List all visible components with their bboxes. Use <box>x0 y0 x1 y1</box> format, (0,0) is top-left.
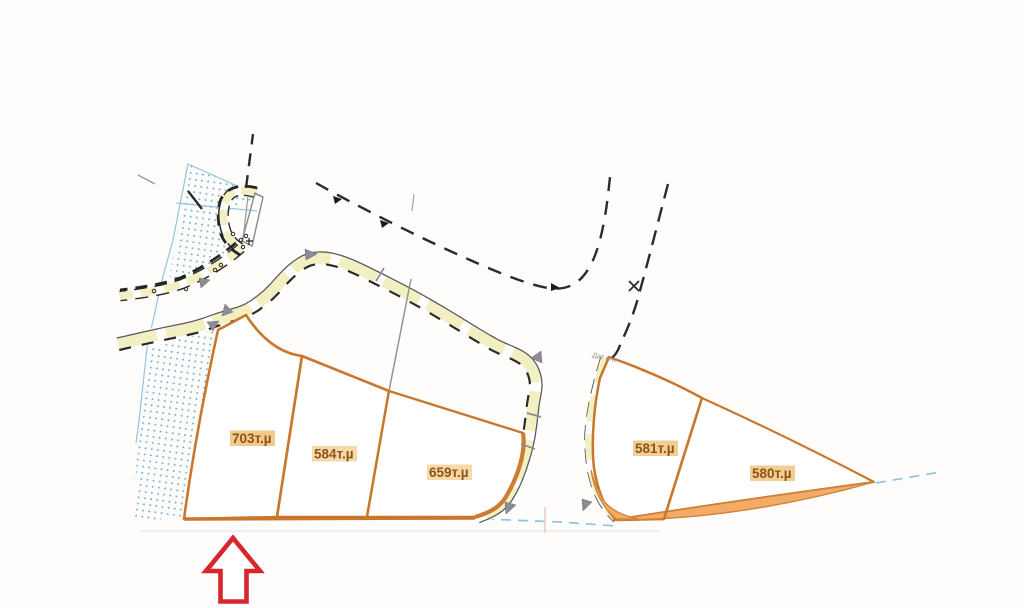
svg-text:584т.µ: 584т.µ <box>314 447 353 462</box>
svg-text:703т.µ: 703т.µ <box>232 431 271 446</box>
svg-text:581т.µ: 581т.µ <box>635 441 674 456</box>
svg-text:659т.µ: 659т.µ <box>429 465 468 480</box>
svg-text:580т.µ: 580т.µ <box>752 466 791 481</box>
